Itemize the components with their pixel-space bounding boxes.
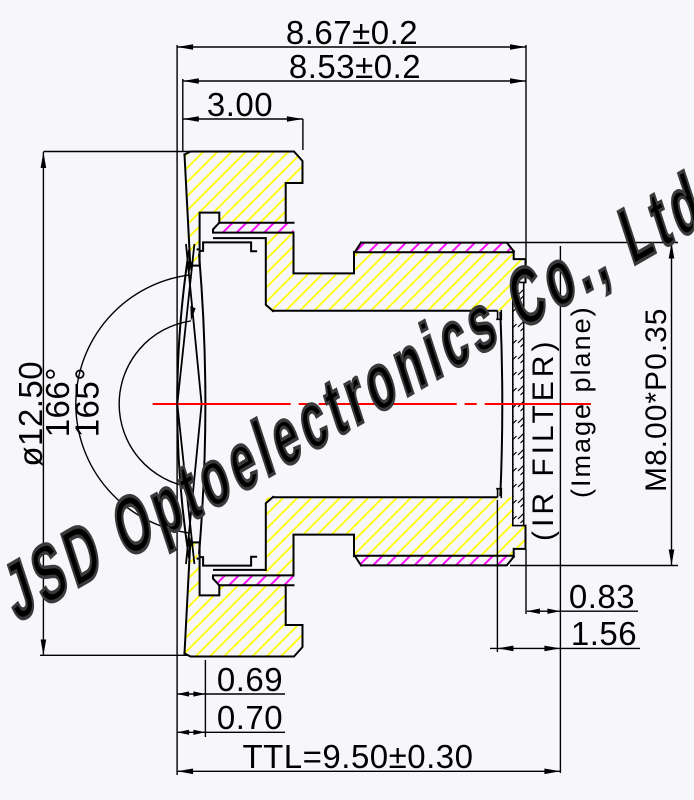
svg-text:8.53±0.2: 8.53±0.2 xyxy=(289,48,421,85)
svg-text:M8.00*P0.35: M8.00*P0.35 xyxy=(640,308,673,492)
svg-text:(Image plane): (Image plane) xyxy=(566,305,596,498)
svg-text:3.00: 3.00 xyxy=(207,86,273,123)
svg-text:(IR FILTER): (IR FILTER) xyxy=(527,338,560,541)
svg-text:0.69: 0.69 xyxy=(217,661,283,698)
svg-text:0.70: 0.70 xyxy=(217,699,283,736)
svg-text:165°: 165° xyxy=(69,367,106,437)
svg-text:8.67±0.2: 8.67±0.2 xyxy=(286,14,418,51)
svg-text:TTL=9.50±0.30: TTL=9.50±0.30 xyxy=(242,738,473,775)
svg-text:0.83: 0.83 xyxy=(569,578,635,615)
svg-text:1.56: 1.56 xyxy=(571,615,637,652)
